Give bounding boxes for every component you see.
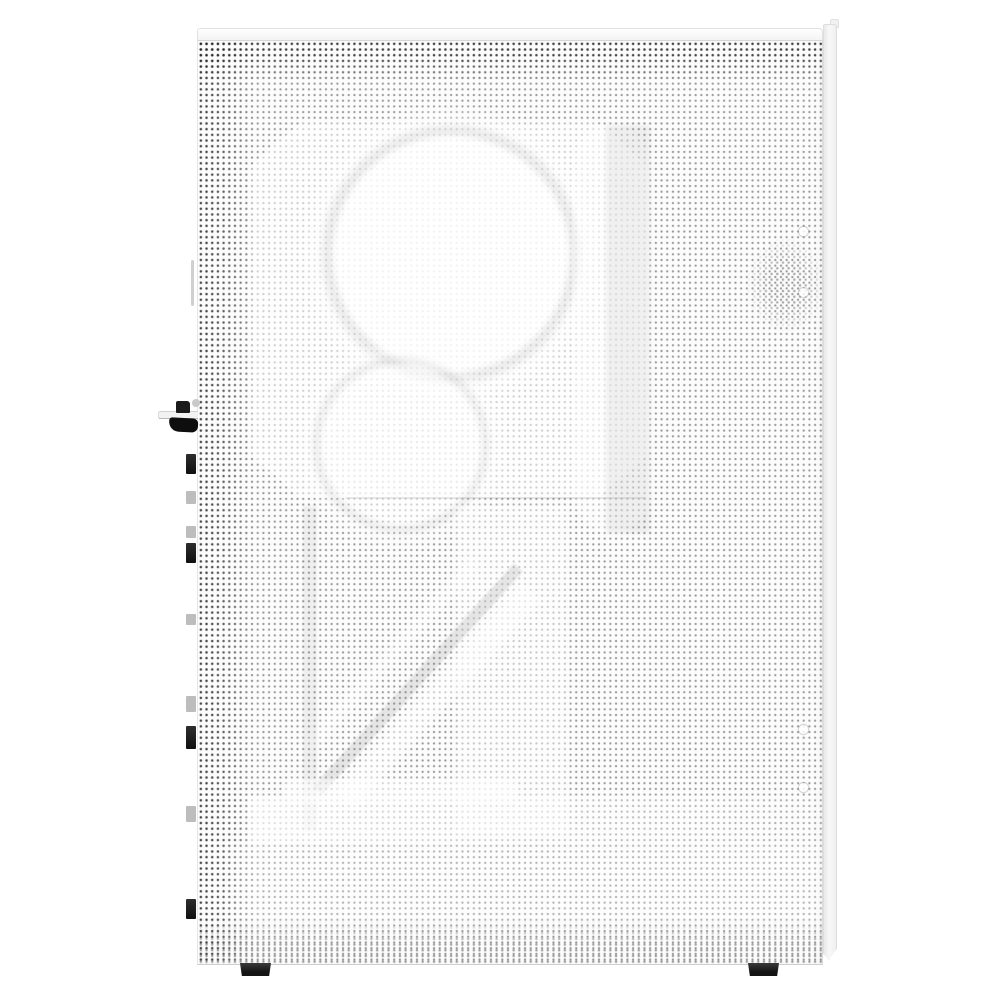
radiator-dark-stripe: [606, 125, 650, 533]
rear-panel-tab-gray: [186, 614, 196, 625]
case-front-edge-strip: [823, 24, 837, 960]
mesh-shade-patch: [746, 237, 823, 333]
case-top-cap: [197, 28, 823, 41]
latch-knob: [176, 401, 190, 413]
mesh-shade-top: [198, 41, 823, 83]
thumbscrew-hole: [799, 783, 808, 792]
rear-panel-tab-dark: [186, 726, 196, 749]
rear-panel-tab-gray: [186, 491, 196, 504]
rubber-foot: [748, 963, 779, 976]
mesh-shade-bottom: [198, 919, 823, 965]
thumbscrew-hole: [799, 288, 808, 297]
rear-panel-tab-dark: [186, 899, 196, 919]
mesh-side-panel: [197, 41, 823, 965]
horizontal-divider-line: [346, 497, 646, 499]
rear-panel-tab-dark: [186, 543, 196, 563]
latch-grip: [169, 417, 199, 432]
thumbscrew-hole: [799, 227, 808, 236]
latch-pivot: [192, 399, 200, 407]
rear-panel-slot: [191, 260, 194, 306]
lower-chamber-band: [228, 843, 823, 925]
mesh-shade-left: [198, 41, 256, 965]
psu-shroud-band: [248, 796, 823, 844]
thumbscrew-hole: [799, 725, 808, 734]
rear-panel-tab-gray: [186, 696, 196, 712]
product-photo-stage: [0, 0, 1000, 1000]
rear-panel-tab-gray: [186, 806, 196, 822]
rear-panel-tab-dark: [186, 454, 196, 474]
rubber-foot: [240, 963, 271, 976]
rear-panel-tab-gray: [186, 526, 196, 538]
